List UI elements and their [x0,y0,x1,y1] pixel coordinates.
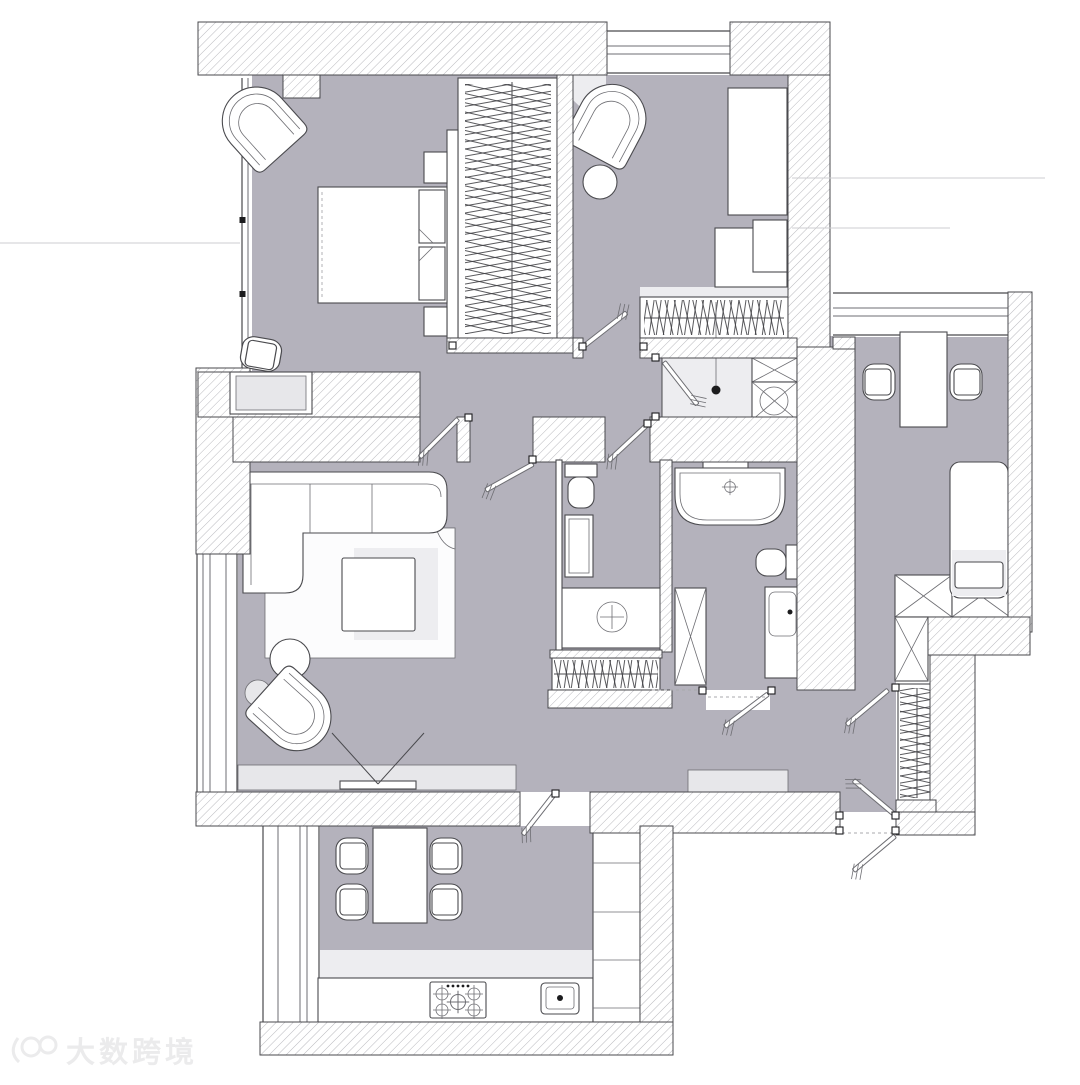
dining-chair [336,884,368,920]
pillow [419,247,445,300]
hallway-furniture [688,770,788,792]
hall-bench-console [688,770,788,792]
nightstand [424,307,447,336]
coffee-table [342,558,415,631]
bed-headboard-partition [447,130,458,338]
floor-plan-stage: 大数跨境 [0,0,1080,1081]
office-chair-right [950,364,982,400]
kitchen-window [262,826,320,1022]
wc-thin-partition [556,460,562,650]
office-chair-left [863,364,895,400]
office-desk [900,332,947,427]
tv [340,781,416,789]
dining-chair [430,884,462,920]
entry-door-opening [840,812,896,835]
wc-washbasin-counter [558,588,662,648]
wc-toilet-tank [565,464,597,477]
kitchen-sink [541,983,579,1014]
nightstand [424,152,447,183]
kids-round-table [583,165,617,199]
bath-vanity-sink [765,587,800,678]
wc-toilet-bowl [568,477,594,508]
kids-room-wardrobe [640,297,788,338]
watermark-logo-icon [13,1037,56,1062]
dining-table [373,828,427,923]
desk [236,376,306,410]
kids-room-window [607,30,730,75]
kids-desk-chair [753,220,787,272]
dining-chair [336,838,368,874]
kids-bed [728,88,787,215]
entry-door-outer-leaf [845,832,902,883]
living-room-window [196,554,238,792]
gas-hob [430,982,486,1019]
kitchen-tall-cabinets [593,826,640,1022]
office-window [833,292,1008,337]
wc-hanger-closet [552,658,660,690]
pillow [419,190,445,243]
office-bed-pillow [955,562,1003,588]
washing-machine-column [752,358,797,420]
dining-chair [430,838,462,874]
shower-drain [712,386,721,395]
bedroom-walkin-wardrobe [447,78,557,338]
watermark-text: 大数跨境 [66,1035,198,1069]
floor-plan-drawing: 大数跨境 [0,0,1080,1081]
bath-toilet-bowl [756,549,786,576]
watermark: 大数跨境 [13,1035,198,1069]
